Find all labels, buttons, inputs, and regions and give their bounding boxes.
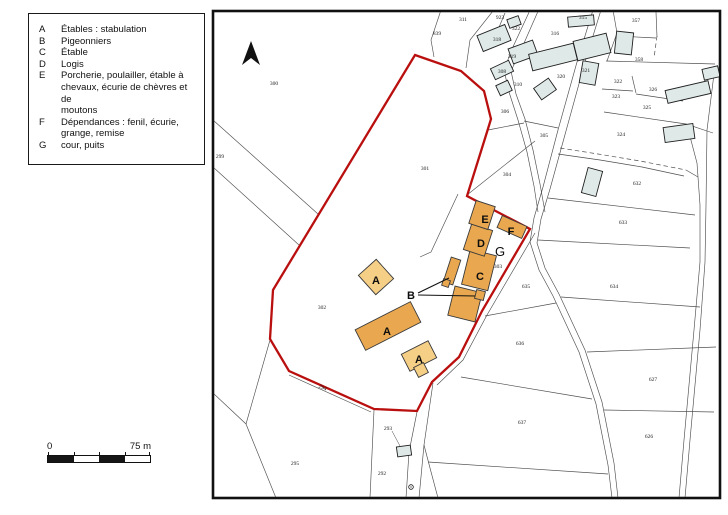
legend-item: CÉtable [39,47,198,59]
legend-key: A [39,24,61,36]
parcel-number: 299 [216,154,225,160]
building-letter: A [372,275,380,287]
scale-tick [74,452,75,456]
building-letter: D [477,238,485,250]
parcel-number: 321 [582,68,591,74]
building-letter: A [415,354,423,366]
building-letter: F [508,226,515,238]
legend-label: Pigeonniers [61,36,197,48]
parcel-number: 626 [645,434,654,440]
scale-segment [99,456,125,462]
parcel-number: 318 [493,37,502,43]
parcel-number: 311 [459,17,467,23]
legend-item: FDépendances : fenil, écurie, grange, re… [39,117,198,140]
legend-label: Dépendances : fenil, écurie, grange, rem… [61,117,197,140]
parcel-number: 306 [501,109,510,115]
scale-tick [125,452,126,456]
building-letter: G [495,244,505,259]
legend-label: Logis [61,59,197,71]
parcel-number: 320 [557,74,566,80]
building-letter: C [476,271,484,283]
parcel-number: 303 [494,264,503,270]
village-building [396,445,411,457]
legend-box: AÉtables : stabulationBPigeonniersCÉtabl… [28,13,205,165]
parcel-number: 304 [503,172,512,178]
scale-start-label: 0 [47,441,52,452]
parcel-number: 323 [612,94,621,100]
scale-segment [125,456,151,462]
legend-label: Porcherie, poulailler, étable à chevaux,… [61,70,197,116]
legend-item: BPigeonniers [39,36,198,48]
parcel-number: 293 [384,426,393,432]
parcel-number: 632 [633,181,642,187]
scale-bar-graphic [47,455,151,463]
building-letter: E [481,214,488,226]
parcel-number: 358 [635,57,644,63]
scale-segment [48,456,74,462]
parcel-number: 316 [551,31,560,37]
legend-item: AÉtables : stabulation [39,24,198,36]
farm-building-B [475,290,486,301]
legend-key: F [39,117,61,140]
legend-item: DLogis [39,59,198,71]
parcel-number: 839 [433,31,442,37]
scale-bar: 0 75 m [47,441,151,463]
parcel-number: 326 [649,87,658,93]
parcel-number: 301 [421,166,430,172]
parcel-number: 292 [378,471,387,477]
parcel-number: 302 [318,305,327,311]
parcel-number: 322 [512,26,521,32]
parcel-number: 633 [619,220,628,226]
parcel-number: 325 [643,105,652,111]
legend-key: B [39,36,61,48]
scale-segment [74,456,100,462]
legend-item: Gcour, puits [39,140,198,152]
legend-label: Étable [61,47,197,59]
scale-tick [99,452,100,456]
village-building [614,31,633,55]
scale-tick [149,452,150,456]
parcel-number: 627 [649,377,658,383]
legend-key: E [39,70,61,116]
parcel-number: 295 [291,461,300,467]
parcel-number: 308 [498,69,507,75]
parcel-number: 635 [522,284,531,290]
legend-label: cour, puits [61,140,197,152]
parcel-number: 322 [614,79,623,85]
map-frame [213,11,720,498]
parcel-number: 319 [508,54,517,60]
scale-end-label: 75 m [130,441,151,452]
parcel-number: 305 [540,133,549,139]
legend-key: G [39,140,61,152]
parcel-number: 324 [617,132,626,138]
parcel-number: 637 [518,420,527,426]
parcel-number: 300 [270,81,279,87]
building-letter: A [383,326,391,338]
parcel-number: 357 [632,18,641,24]
parcel-number: 634 [610,284,619,290]
legend-label: Étables : stabulation [61,24,197,36]
scale-tick [48,452,49,456]
legend-item: EPorcherie, poulailler, étable à chevaux… [39,70,198,116]
legend-key: D [39,59,61,71]
legend-key: C [39,47,61,59]
parcel-number: 636 [516,341,525,347]
building-letter: B [407,290,415,302]
parcel-number: 923 [496,15,505,21]
parcel-number: 310 [514,82,523,88]
parcel-number: 315 [579,15,588,21]
